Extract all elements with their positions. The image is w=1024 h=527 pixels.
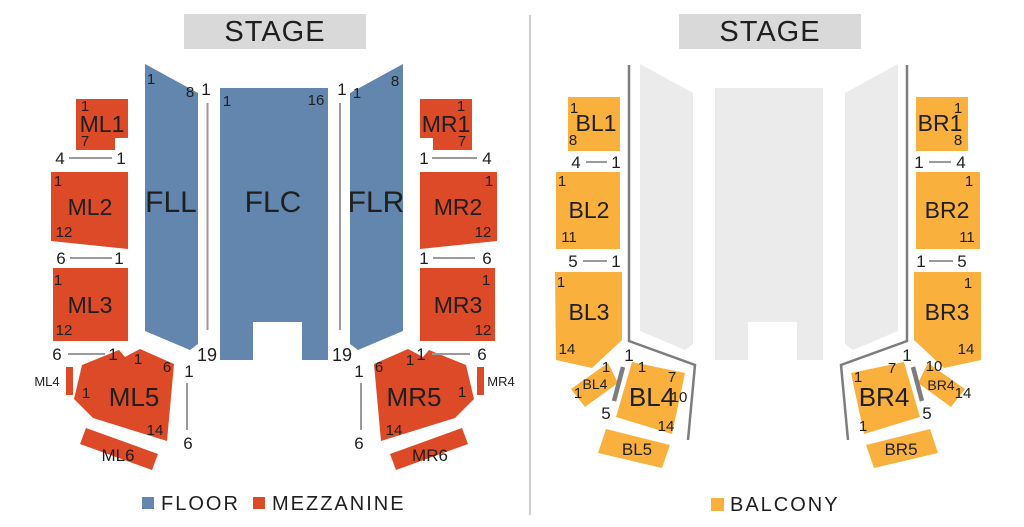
section-br4-large: BR4711: [851, 360, 920, 435]
rows-br2-end-number: 5: [957, 252, 966, 271]
seat-number-bl4-large-3: 14: [658, 418, 675, 435]
rows-ml2-start-number: 6: [56, 249, 65, 268]
aisle-line-floor-right-label-0: 1: [337, 80, 346, 99]
rows-bl2-start-number: 5: [568, 252, 577, 271]
section-label-bl4-small: BL4: [583, 376, 608, 392]
balcony-stairs-left-label-0: 5: [601, 404, 610, 423]
section-label-br4-large: BR4: [859, 382, 910, 412]
section-label-flc: FLC: [245, 186, 302, 219]
section-br3: BR3114: [914, 272, 981, 368]
section-bl3: BL3114: [555, 272, 622, 368]
seat-number-ml1-1: 7: [81, 133, 89, 150]
aisle-line-floor-left-label-0: 1: [201, 80, 210, 99]
section-label-ml6: ML6: [101, 446, 134, 465]
section-bl2: BL2111: [556, 172, 620, 249]
section-floor-left-disabled: [640, 64, 693, 350]
section-label-fll: FLL: [145, 186, 197, 219]
section-label-bl5: BL5: [622, 440, 652, 459]
seat-number-br1-0: 1: [954, 100, 962, 117]
rows-mr1-start-number: 1: [419, 149, 428, 168]
seat-number-flc-1: 16: [308, 92, 325, 109]
balcony-rail-right-label-0: 1: [902, 346, 911, 365]
rows-ml2: 61: [56, 249, 123, 268]
seat-number-bl4-small-1: 1: [574, 385, 582, 402]
seat-number-mr5-0: 1: [406, 352, 414, 369]
rows-br2-start-number: 1: [916, 252, 925, 271]
seat-number-br3-0: 1: [964, 275, 972, 292]
seat-number-ml5-1: 6: [163, 359, 171, 376]
section-label-mr3: MR3: [434, 292, 483, 318]
seat-number-ml2-1: 12: [56, 224, 73, 241]
seat-number-fll-1: 8: [186, 84, 194, 101]
seat-number-bl4-small-0: 1: [602, 359, 610, 376]
sections-layer: FLL18FLC116FLR18ML117ML2112ML3112ML4ML51…: [34, 64, 981, 470]
section-ml1: ML117: [76, 98, 128, 150]
section-label-br3: BR3: [925, 299, 970, 325]
seat-number-ml5-3: 14: [147, 422, 164, 439]
section-mr3: MR3112: [420, 268, 495, 341]
row-line-mr5-label-1: 6: [354, 434, 363, 453]
rows-ml1-end-number: 1: [116, 149, 125, 168]
seat-number-br4-large-0: 7: [888, 360, 896, 377]
section-floor-right-disabled: [845, 64, 898, 350]
rows-mr3-end-number: 6: [477, 345, 486, 364]
section-shape-floor-left-disabled: [640, 64, 693, 350]
rows-br1: 14: [914, 153, 965, 172]
seat-number-ml3-1: 12: [56, 322, 73, 339]
legend-label-balcony: BALCONY: [730, 494, 840, 516]
balcony-rail-left-label-0: 1: [624, 346, 633, 365]
section-label-ml4: ML4: [34, 374, 59, 389]
section-label-bl2: BL2: [569, 197, 610, 223]
row-line-mr5: 16: [354, 362, 363, 453]
section-mr2: MR2112: [420, 172, 497, 249]
seat-number-br3-1: 14: [958, 341, 975, 358]
section-ml2: ML2112: [51, 172, 128, 249]
seat-number-bl4-large-1: 7: [668, 369, 676, 386]
section-label-bl4-large: BL4: [629, 382, 675, 412]
section-shape-ml4[interactable]: [66, 367, 73, 395]
aisle-line-floor-right: 119: [332, 80, 352, 365]
seat-number-fll-0: 1: [147, 71, 155, 88]
rows-ml2-end-number: 1: [114, 249, 123, 268]
section-label-bl3: BL3: [569, 299, 610, 325]
seat-number-ml2-0: 1: [54, 173, 62, 190]
aisle-line-floor-left-label-1: 19: [197, 345, 217, 365]
seat-number-mr1-1: 7: [458, 133, 466, 150]
section-shape-mr4[interactable]: [477, 367, 484, 395]
section-bl4-small: BL411: [571, 359, 618, 407]
rows-br1-end-number: 4: [956, 153, 965, 172]
legend-balcony: BALCONY: [711, 494, 840, 516]
seat-number-br2-0: 1: [965, 173, 973, 190]
section-label-ml2: ML2: [68, 194, 113, 220]
legend-swatch-floor: [142, 497, 154, 509]
rows-mr2: 16: [419, 249, 491, 268]
section-mr1: MR117: [420, 98, 472, 150]
section-fll: FLL18: [145, 64, 198, 350]
rows-ml3: 61: [52, 345, 117, 364]
rows-ml1: 41: [55, 149, 125, 168]
legend-label-mezzanine: MEZZANINE: [272, 493, 406, 515]
stage-left: STAGE: [184, 14, 366, 49]
row-line-ml5: 16: [183, 362, 193, 453]
stage-right: STAGE: [679, 14, 861, 49]
seat-number-bl3-1: 14: [559, 341, 576, 358]
rows-bl2: 51: [568, 252, 620, 271]
seat-number-br4-large-2: 1: [859, 418, 867, 435]
rows-mr3-start-number: 1: [416, 345, 425, 364]
section-label-br4-small: BR4: [927, 377, 954, 393]
seat-number-flr-1: 8: [391, 73, 399, 90]
section-label-mr2: MR2: [434, 194, 483, 220]
venue-seating-map: STAGE STAGE FLL18FLC116FLR18ML117ML2112M…: [0, 0, 1024, 527]
section-flr: FLR18: [348, 64, 405, 350]
section-label-bl1: BL1: [576, 110, 617, 136]
section-flc: FLC116: [220, 88, 328, 360]
seat-number-br4-small-0: 10: [926, 358, 943, 375]
legend-swatch-balcony: [711, 498, 724, 511]
seat-number-mr1-0: 1: [457, 98, 465, 115]
rows-bl2-end-number: 1: [611, 252, 620, 271]
aisle-line-floor-right-label-1: 19: [332, 345, 352, 365]
rows-bl1-end-number: 1: [611, 153, 620, 172]
seat-number-mr2-0: 1: [485, 173, 493, 190]
seat-number-bl2-1: 11: [561, 229, 577, 246]
section-mr4: MR4: [477, 367, 515, 395]
row-line-mr5-label-0: 1: [354, 362, 363, 381]
section-floor-center-disabled: [715, 88, 823, 360]
legend-floor-mezzanine: FLOOR MEZZANINE: [142, 493, 406, 515]
seat-number-mr3-1: 12: [475, 322, 492, 339]
section-br1: BR118: [916, 97, 968, 151]
rows-ml3-start-number: 6: [52, 345, 61, 364]
stage-right-label: STAGE: [719, 16, 820, 48]
section-ml4: ML4: [34, 367, 73, 395]
rows-bl1-start-number: 4: [571, 153, 580, 172]
seat-number-flc-0: 1: [223, 93, 231, 110]
seat-number-bl3-0: 1: [557, 274, 565, 291]
seat-number-bl2-0: 1: [558, 173, 566, 190]
seat-number-bl1-1: 8: [569, 132, 577, 149]
seating-chart-page: STAGE STAGE FLL18FLC116FLR18ML117ML2112M…: [0, 0, 1024, 527]
section-shape-flc[interactable]: [220, 88, 328, 360]
section-label-flr: FLR: [348, 186, 405, 219]
seat-number-bl1-0: 1: [570, 100, 578, 117]
section-br2: BR2111: [916, 172, 980, 249]
seat-number-mr5-1: 6: [375, 359, 383, 376]
section-ml3: ML3112: [53, 268, 128, 341]
section-label-ml3: ML3: [68, 292, 113, 318]
row-line-ml5-label-0: 1: [184, 362, 193, 381]
seat-number-mr2-1: 12: [475, 224, 492, 241]
rows-ml1-start-number: 4: [55, 149, 64, 168]
seat-number-br2-1: 11: [959, 229, 975, 246]
seat-number-br4-small-1: 14: [955, 385, 972, 402]
seat-number-bl4-large-0: 1: [638, 359, 646, 376]
rows-ml3-end-number: 1: [108, 345, 117, 364]
seat-number-br1-1: 8: [954, 132, 962, 149]
rows-mr2-end-number: 6: [482, 249, 491, 268]
section-label-mr5: MR5: [387, 382, 442, 412]
seat-number-ml3-0: 1: [54, 272, 62, 289]
seat-number-flr-0: 1: [353, 85, 361, 102]
section-ml5: ML516114: [74, 349, 174, 441]
section-shape-floor-right-disabled: [845, 64, 898, 350]
rows-mr2-start-number: 1: [419, 249, 428, 268]
section-label-br5: BR5: [884, 440, 917, 459]
aisle-line-floor-left: 119: [197, 80, 217, 365]
seat-number-ml1-0: 1: [81, 98, 89, 115]
section-shape-floor-center-disabled: [715, 88, 823, 360]
seat-number-mr3-0: 1: [482, 272, 490, 289]
legend-swatch-mezzanine: [253, 497, 265, 509]
rows-mr1-end-number: 4: [482, 149, 491, 168]
seat-number-ml5-2: 1: [82, 385, 90, 402]
section-bl1: BL118: [568, 97, 620, 151]
section-bl4-large: BL4171014: [616, 359, 687, 435]
section-label-mr6: MR6: [412, 446, 448, 465]
rows-br2: 15: [916, 252, 966, 271]
seat-number-br4-large-1: 1: [854, 369, 862, 386]
rows-br1-start-number: 1: [914, 153, 923, 172]
section-br5: BR5: [866, 429, 938, 468]
section-label-mr4: MR4: [487, 374, 514, 389]
row-line-ml5-label-1: 6: [183, 434, 192, 453]
seat-number-mr5-3: 14: [386, 422, 403, 439]
balcony-stairs-right-label-0: 5: [922, 404, 931, 423]
stage-left-label: STAGE: [224, 16, 325, 48]
seat-number-ml5-0: 1: [134, 351, 142, 368]
seat-number-bl4-large-2: 10: [671, 389, 688, 406]
rows-bl1: 41: [571, 153, 620, 172]
seat-number-mr5-2: 1: [458, 384, 466, 401]
section-label-ml5: ML5: [109, 382, 160, 412]
legend-label-floor: FLOOR: [161, 493, 240, 515]
section-label-br2: BR2: [925, 197, 970, 223]
rows-mr1: 14: [419, 149, 491, 168]
